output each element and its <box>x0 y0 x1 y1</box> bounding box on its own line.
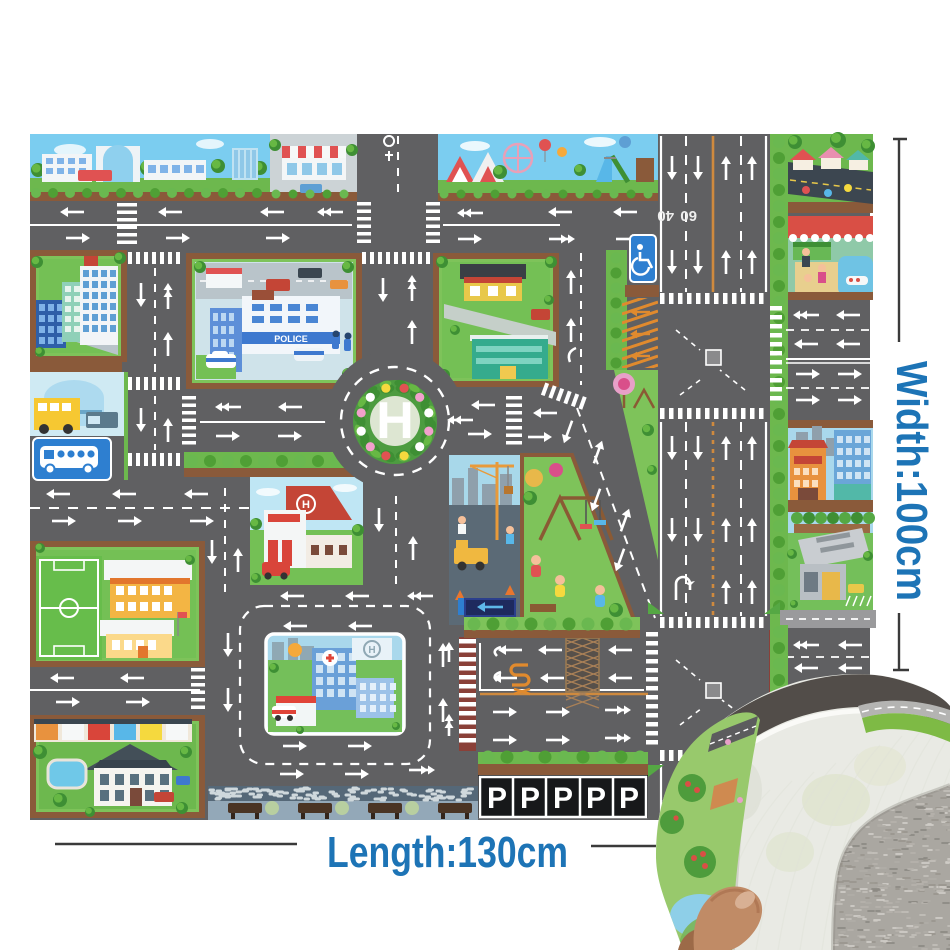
svg-text:H: H <box>302 499 310 511</box>
svg-text:Width:100cm: Width:100cm <box>887 361 936 601</box>
svg-text:P: P <box>487 782 507 815</box>
svg-text:60: 60 <box>680 207 697 224</box>
svg-text:P: P <box>586 782 606 815</box>
svg-text:POLICE: POLICE <box>274 334 308 344</box>
svg-text:Length:130cm: Length:130cm <box>327 828 568 877</box>
svg-text:P: P <box>619 782 639 815</box>
svg-text:40: 40 <box>657 207 674 224</box>
svg-text:H: H <box>368 645 375 656</box>
svg-text:H: H <box>376 392 414 450</box>
svg-text:P: P <box>520 782 540 815</box>
svg-text:P: P <box>553 782 573 815</box>
